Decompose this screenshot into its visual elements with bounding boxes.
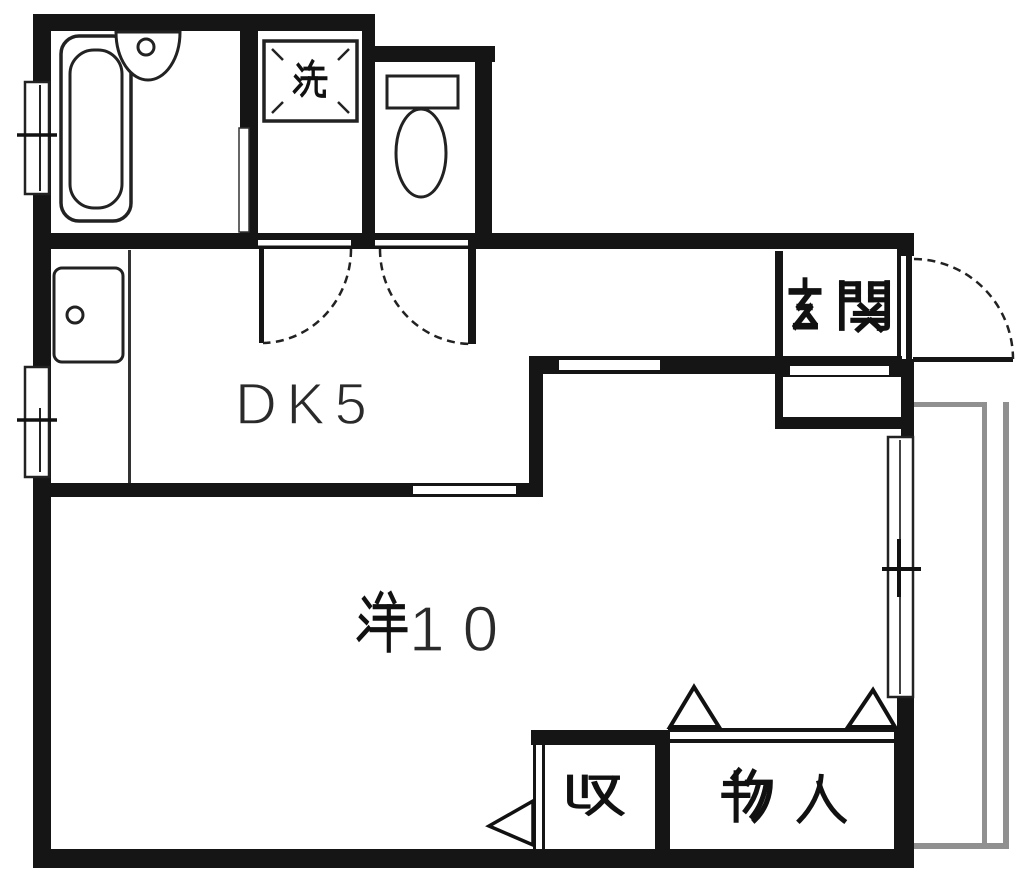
svg-text:10: 10 (409, 593, 516, 665)
svg-text:DK5: DK5 (235, 372, 376, 437)
